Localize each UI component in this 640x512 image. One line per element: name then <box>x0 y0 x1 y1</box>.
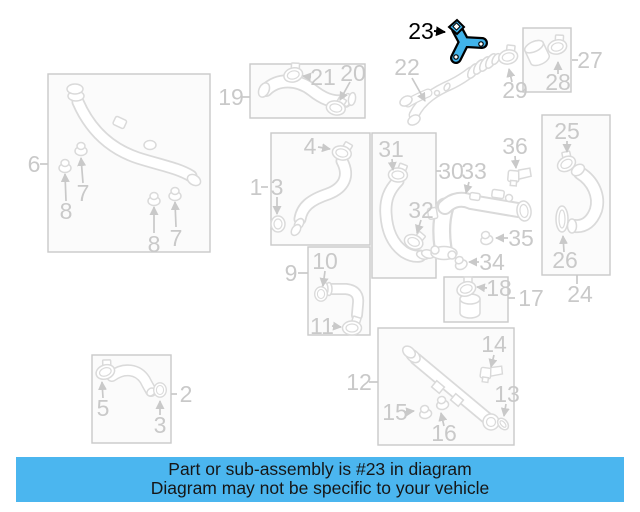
svg-text:29: 29 <box>502 77 528 103</box>
parts-diagram-page: 6 7 8 8 7 19 21 20 1 3 4 9 <box>0 0 640 512</box>
banner-line-2: Diagram may not be specific to your vehi… <box>151 478 489 498</box>
grommet-35 <box>479 230 494 246</box>
highlighted-part-23 <box>449 20 483 59</box>
svg-text:7: 7 <box>77 180 90 206</box>
svg-text:33: 33 <box>461 158 487 184</box>
diagram-canvas: 6 7 8 8 7 19 21 20 1 3 4 9 <box>0 0 640 512</box>
oring-3a <box>271 216 285 232</box>
callout-30: 30 <box>436 158 464 184</box>
svg-text:19: 19 <box>218 84 244 110</box>
svg-text:8: 8 <box>60 198 73 224</box>
callout-1: 1 <box>250 174 268 200</box>
svg-text:7: 7 <box>170 225 183 251</box>
svg-text:6: 6 <box>28 151 41 177</box>
group-box-1 <box>271 133 370 245</box>
callout-33: 33 <box>461 158 487 193</box>
svg-text:32: 32 <box>408 197 434 223</box>
grommet-8b <box>148 193 160 206</box>
callout-27: 27 <box>572 47 603 73</box>
svg-text:18: 18 <box>486 275 512 301</box>
callout-9: 9 <box>285 260 308 286</box>
callout-35: 35 <box>496 225 534 251</box>
svg-text:9: 9 <box>285 260 298 286</box>
grommet-7a <box>75 143 87 156</box>
sensor-36 <box>507 166 532 187</box>
svg-text:27: 27 <box>577 47 603 73</box>
svg-text:23: 23 <box>408 18 434 44</box>
coupler-sleeve-17 <box>460 294 480 318</box>
svg-text:25: 25 <box>554 118 580 144</box>
svg-text:14: 14 <box>481 331 507 357</box>
oring-3b <box>154 383 167 397</box>
bracket-arm <box>456 29 482 58</box>
grommet-8a <box>59 160 71 173</box>
svg-text:36: 36 <box>502 133 528 159</box>
bracket-hole-bottom <box>454 55 458 59</box>
svg-text:35: 35 <box>508 225 534 251</box>
svg-text:26: 26 <box>552 247 578 273</box>
svg-text:24: 24 <box>567 281 593 307</box>
callout-23: 23 <box>408 18 445 44</box>
svg-text:16: 16 <box>431 420 457 446</box>
svg-text:15: 15 <box>382 399 408 425</box>
svg-text:17: 17 <box>518 285 544 311</box>
svg-text:1: 1 <box>250 174 263 200</box>
callout-24: 24 <box>567 275 593 307</box>
bracket-hole-right <box>479 42 483 46</box>
svg-text:4: 4 <box>304 133 317 159</box>
svg-text:11: 11 <box>310 313 334 339</box>
callout-17: 17 <box>508 285 544 311</box>
callout-19: 19 <box>218 84 250 110</box>
svg-text:2: 2 <box>180 381 193 407</box>
svg-text:12: 12 <box>346 369 372 395</box>
oring-10 <box>315 287 328 301</box>
callout-22: 22 <box>394 54 425 101</box>
grommet-7b <box>169 188 181 201</box>
callout-36: 36 <box>502 133 528 168</box>
callout-12: 12 <box>346 369 378 395</box>
callout-6: 6 <box>28 151 48 177</box>
svg-text:34: 34 <box>479 249 505 275</box>
svg-text:5: 5 <box>97 395 110 421</box>
callout-34: 34 <box>469 249 505 275</box>
svg-text:10: 10 <box>312 248 338 274</box>
svg-text:21: 21 <box>310 64 336 90</box>
banner-line-1: Part or sub-assembly is #23 in diagram <box>168 459 471 479</box>
clamp-29 <box>496 43 519 66</box>
oring-26 <box>556 206 568 232</box>
info-banner: Part or sub-assembly is #23 in diagram D… <box>16 457 624 502</box>
svg-text:30: 30 <box>438 158 464 184</box>
svg-text:3: 3 <box>271 174 284 200</box>
svg-text:31: 31 <box>378 136 404 162</box>
callout-2: 2 <box>171 381 192 407</box>
svg-text:28: 28 <box>545 69 571 95</box>
svg-text:8: 8 <box>148 231 161 257</box>
svg-text:22: 22 <box>394 54 420 80</box>
svg-text:3: 3 <box>154 412 167 438</box>
svg-text:20: 20 <box>340 60 366 86</box>
svg-text:13: 13 <box>494 381 520 407</box>
